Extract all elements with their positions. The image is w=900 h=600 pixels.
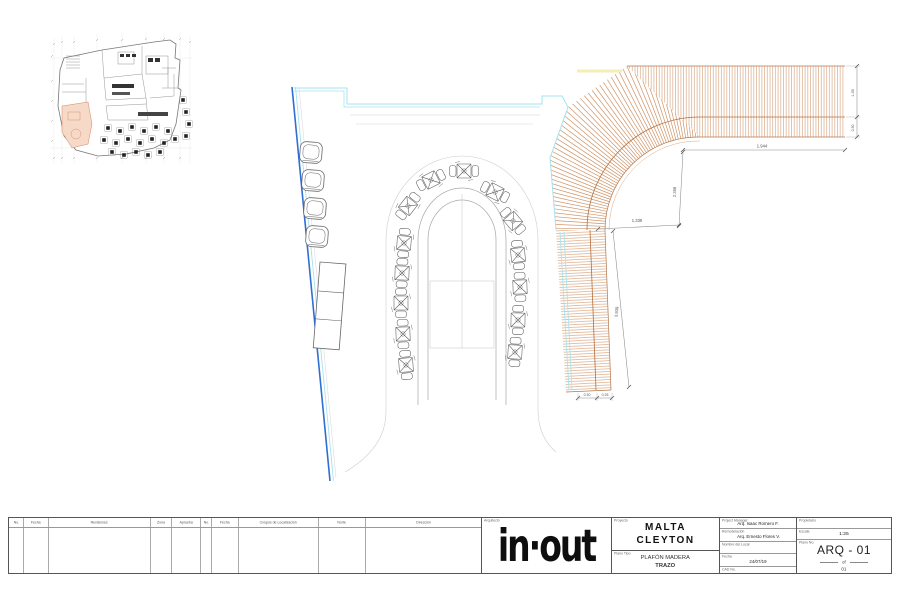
svg-text:0.30: 0.30: [584, 393, 591, 397]
credit-label: CAD No.: [722, 568, 736, 572]
keyplan-table-mark: [187, 122, 191, 126]
credit-row: Fecha24/07/19: [720, 554, 796, 568]
revision-table: No.FechaRevisionesZonaApruebaNo.FechaCro…: [9, 518, 481, 573]
plan-canvas: 1.944 2.358 1.339 3.939 1.35 0.30 0.30 0…: [0, 0, 900, 600]
sheet-number-label: Plano No.: [799, 541, 814, 545]
project-name: MALTA CLEYTON: [636, 521, 694, 548]
revision-col-header: No.: [201, 518, 212, 527]
keyplan-table-mark: [118, 129, 122, 133]
revision-col-header: Aprueba: [172, 518, 201, 527]
architect-label: Arquitecto: [484, 519, 500, 523]
dining-table: [505, 337, 525, 367]
revision-col-header: Zona: [151, 518, 172, 527]
keyplan-table-mark: [181, 98, 185, 102]
dining-table: [392, 289, 411, 318]
revision-header: No.FechaRevisionesZonaApruebaNo.FechaCro…: [9, 518, 481, 528]
credits-column: Project ManagerArq. Isaac Romero F.Remod…: [719, 518, 796, 573]
keyplan-table-mark: [146, 153, 150, 157]
keyplan-table-mark: [154, 125, 158, 129]
revision-col-header: Norte: [319, 518, 366, 527]
keyplan-highlight-zone: [62, 102, 92, 148]
dining-table: [496, 204, 529, 238]
credit-label: Project Manager: [722, 519, 748, 523]
rule-line: [820, 562, 838, 563]
revision-col-cell: [49, 528, 151, 573]
scale-cell: Escala 1:25: [797, 529, 891, 540]
owner-label: Propietario: [799, 519, 816, 523]
svg-text:1.944: 1.944: [757, 144, 768, 149]
lounge-chairs: [299, 141, 328, 247]
keyplan-table-mark: [126, 137, 130, 141]
keyplan-table-mark: [130, 125, 134, 129]
keyplan-table-mark: [110, 150, 114, 154]
project-cell: Proyecto MALTA CLEYTON: [612, 518, 719, 551]
svg-text:0.30: 0.30: [851, 125, 855, 132]
bench: [313, 262, 346, 350]
keyplan-table-mark: [158, 150, 162, 154]
main-drawing: 1.944 2.358 1.339 3.939 1.35 0.30 0.30 0…: [292, 64, 860, 481]
sheet-of-label: of: [842, 560, 846, 564]
lounge-chair: [299, 141, 322, 163]
revision-col-header: Revisiones: [49, 518, 151, 527]
keyplan-table-mark: [114, 141, 118, 145]
dining-tables: [392, 162, 531, 381]
credit-value: Arq. Ernesto Flores V.: [737, 534, 779, 539]
plan-type-line2: TRAZO: [641, 562, 690, 570]
revision-col-header: Fecha: [24, 518, 49, 527]
svg-text:1.35: 1.35: [851, 89, 855, 96]
keyplan-table-mark: [106, 126, 110, 130]
svg-text:1.339: 1.339: [632, 218, 643, 223]
revision-col-header: No.: [9, 518, 24, 527]
project-column: Proyecto MALTA CLEYTON Plano Tipo PLAFÓN…: [611, 518, 719, 573]
dining-table: [414, 165, 448, 195]
dining-table: [392, 189, 425, 224]
revision-col-cell: [239, 528, 319, 573]
plan-type-name: PLAFÓN MADERA TRAZO: [641, 554, 690, 570]
credit-label: Remodelación: [722, 530, 744, 534]
keyplan-table-mark: [166, 129, 170, 133]
sheet-of-row: of: [820, 559, 868, 566]
revision-col-cell: [366, 528, 481, 573]
scale-label: Escala: [799, 530, 810, 534]
revision-col-cell: [172, 528, 201, 573]
dining-table: [507, 240, 528, 271]
sheet-number: ARQ - 01: [817, 543, 871, 557]
project-label: Proyecto: [614, 519, 628, 523]
plan-type-label: Plano Tipo: [614, 552, 631, 556]
drawing-sheet: 1.944 2.358 1.339 3.939 1.35 0.30 0.30 0…: [0, 0, 900, 600]
credit-row: CAD No.: [720, 567, 796, 573]
keyplan-table-mark: [162, 141, 166, 145]
sheet-number-cell: Plano No. ARQ - 01 of 01: [797, 540, 891, 573]
scale-value: 1:25: [815, 531, 873, 537]
project-name-line2: CLEYTON: [636, 534, 694, 548]
rule-line: [850, 562, 868, 563]
title-block: No.FechaRevisionesZonaApruebaNo.FechaCro…: [8, 517, 892, 574]
revision-col-cell: [201, 528, 212, 573]
revision-col-cell: [151, 528, 172, 573]
credit-value: 24/07/19: [737, 559, 779, 564]
revision-col-cell: [9, 528, 24, 573]
dining-table: [510, 272, 530, 302]
owner-cell: Propietario: [797, 518, 891, 529]
credit-label: Nombre del Local: [722, 543, 749, 547]
credit-row: Nombre del Local: [720, 542, 796, 554]
keyplan-table-mark: [173, 137, 177, 141]
credit-row: Project ManagerArq. Isaac Romero F.: [720, 518, 796, 529]
project-name-line1: MALTA: [636, 521, 694, 535]
keyplan-table-mark: [184, 110, 188, 114]
key-plan-thumbnail: [50, 33, 192, 163]
dining-table: [394, 228, 415, 258]
revision-col-cell: [24, 528, 49, 573]
dining-table: [392, 258, 412, 288]
svg-text:2.358: 2.358: [672, 186, 677, 197]
svg-text:3.939: 3.939: [614, 306, 620, 318]
dining-table: [450, 162, 479, 181]
revision-col-header: Fecha: [212, 518, 239, 527]
dining-table: [396, 350, 417, 380]
revision-body: [9, 528, 481, 573]
keyplan-table-mark: [134, 150, 138, 154]
revision-col-cell: [319, 528, 366, 573]
dining-table: [478, 177, 512, 207]
dining-table: [508, 305, 528, 334]
inout-logo: in·out: [498, 519, 595, 572]
lounge-chair: [305, 225, 328, 247]
revision-col-header: Croquis de Localización: [239, 518, 319, 527]
sheet-total: 01: [841, 567, 846, 572]
sheet-info-column: Propietario Escala 1:25 Plano No. ARQ - …: [796, 518, 891, 573]
plan-type-cell: Plano Tipo PLAFÓN MADERA TRAZO: [612, 551, 719, 573]
revision-col-header: Dirección: [366, 518, 481, 527]
dining-table: [393, 319, 413, 349]
svg-text:0.25: 0.25: [602, 393, 609, 397]
keyplan-table-mark: [122, 153, 126, 157]
keyplan-table-mark: [142, 129, 146, 133]
keyplan-table-mark: [184, 134, 188, 138]
keyplan-table-mark: [102, 138, 106, 142]
keyplan-table-mark: [138, 141, 142, 145]
lounge-chair: [303, 197, 326, 219]
keyplan-table-mark: [150, 137, 154, 141]
cyan-wall-line: [294, 88, 568, 230]
credit-label: Fecha: [722, 555, 732, 559]
credit-row: RemodelaciónArq. Ernesto Flores V.: [720, 529, 796, 543]
architect-cell: Arquitecto in·out: [481, 518, 611, 573]
revision-col-cell: [212, 528, 239, 573]
lounge-chair: [301, 169, 324, 191]
